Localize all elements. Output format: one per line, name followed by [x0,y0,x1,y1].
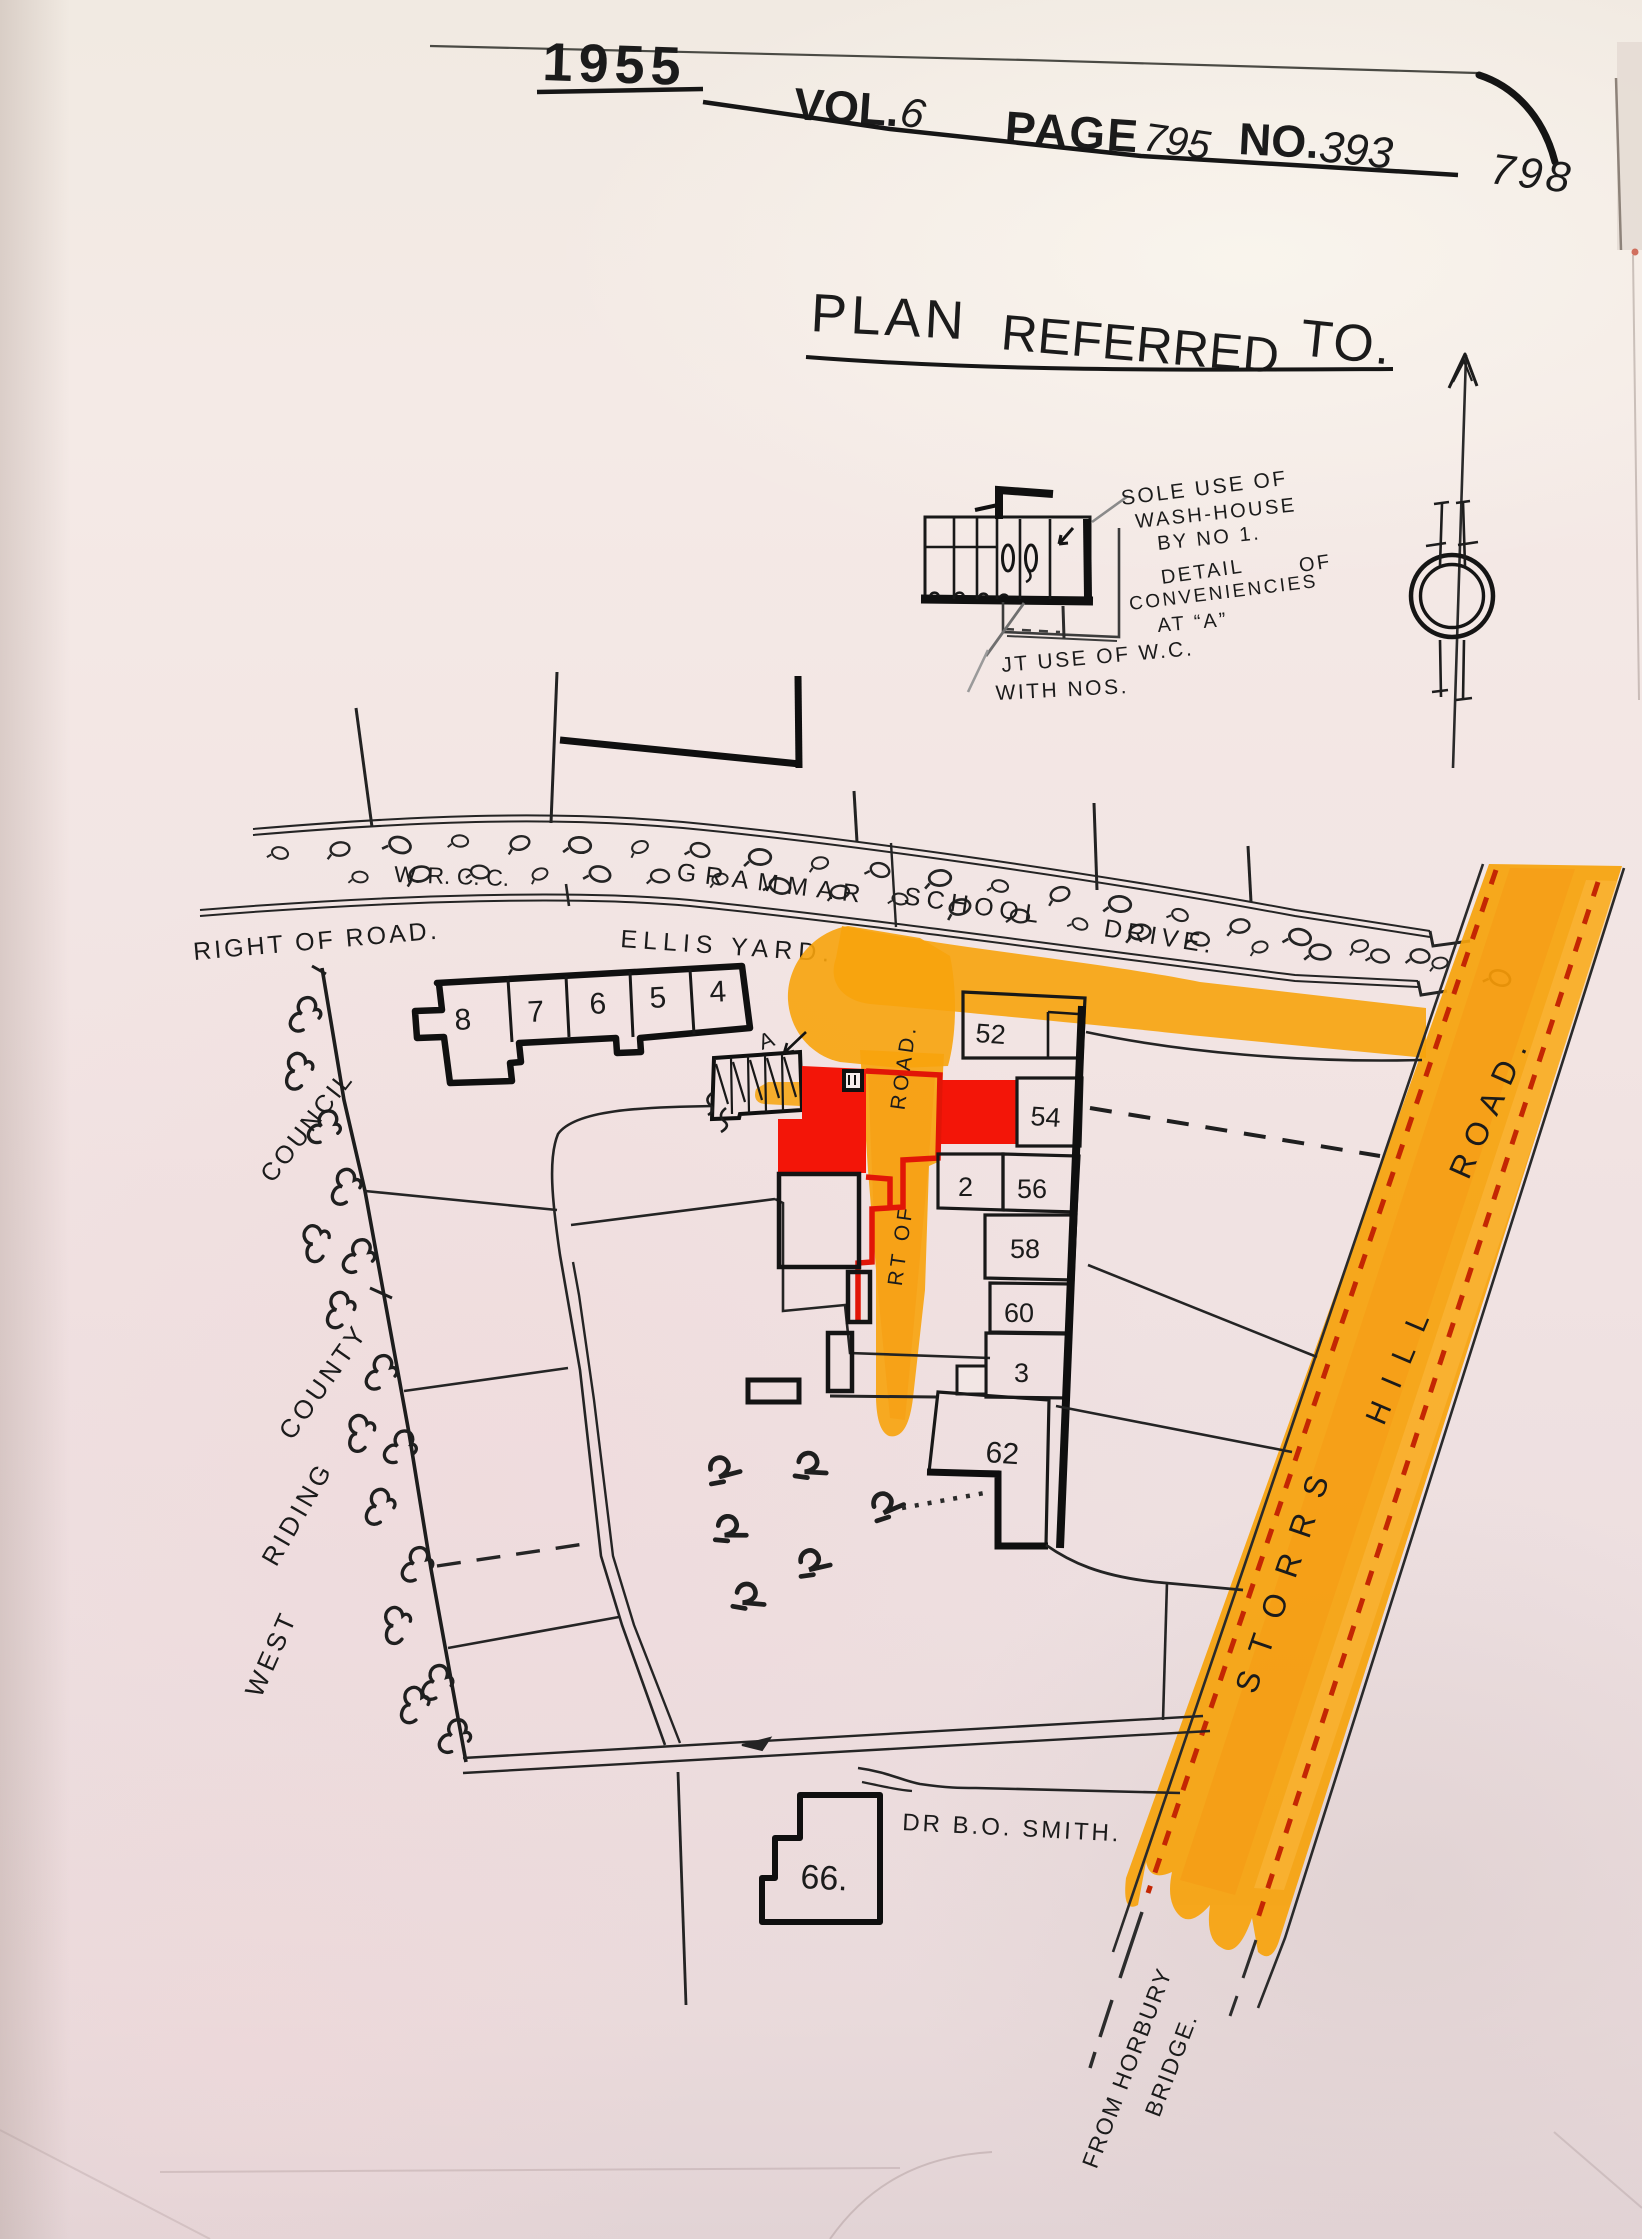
svg-text:PLAN: PLAN [809,283,969,351]
svg-text:8: 8 [454,1003,472,1037]
svg-text:4: 4 [709,975,727,1009]
svg-text:2: 2 [958,1172,973,1202]
svg-text:58: 58 [1010,1234,1040,1264]
svg-text:W. R. C. C.: W. R. C. C. [394,861,510,891]
svg-text:TO.: TO. [1298,309,1395,376]
svg-text:60: 60 [1004,1298,1034,1328]
svg-text:56: 56 [1017,1174,1047,1204]
svg-text:7: 7 [527,995,545,1029]
svg-text:1955: 1955 [542,32,688,97]
svg-text:798: 798 [1488,145,1577,203]
svg-text:54: 54 [1030,1101,1062,1133]
svg-text:62: 62 [985,1436,1021,1471]
svg-text:66.: 66. [800,1858,849,1898]
svg-text:3: 3 [1014,1358,1029,1388]
svg-text:52: 52 [975,1018,1007,1050]
svg-text:5: 5 [649,981,667,1015]
svg-text:NO.: NO. [1237,113,1320,168]
svg-text:6: 6 [589,987,607,1021]
